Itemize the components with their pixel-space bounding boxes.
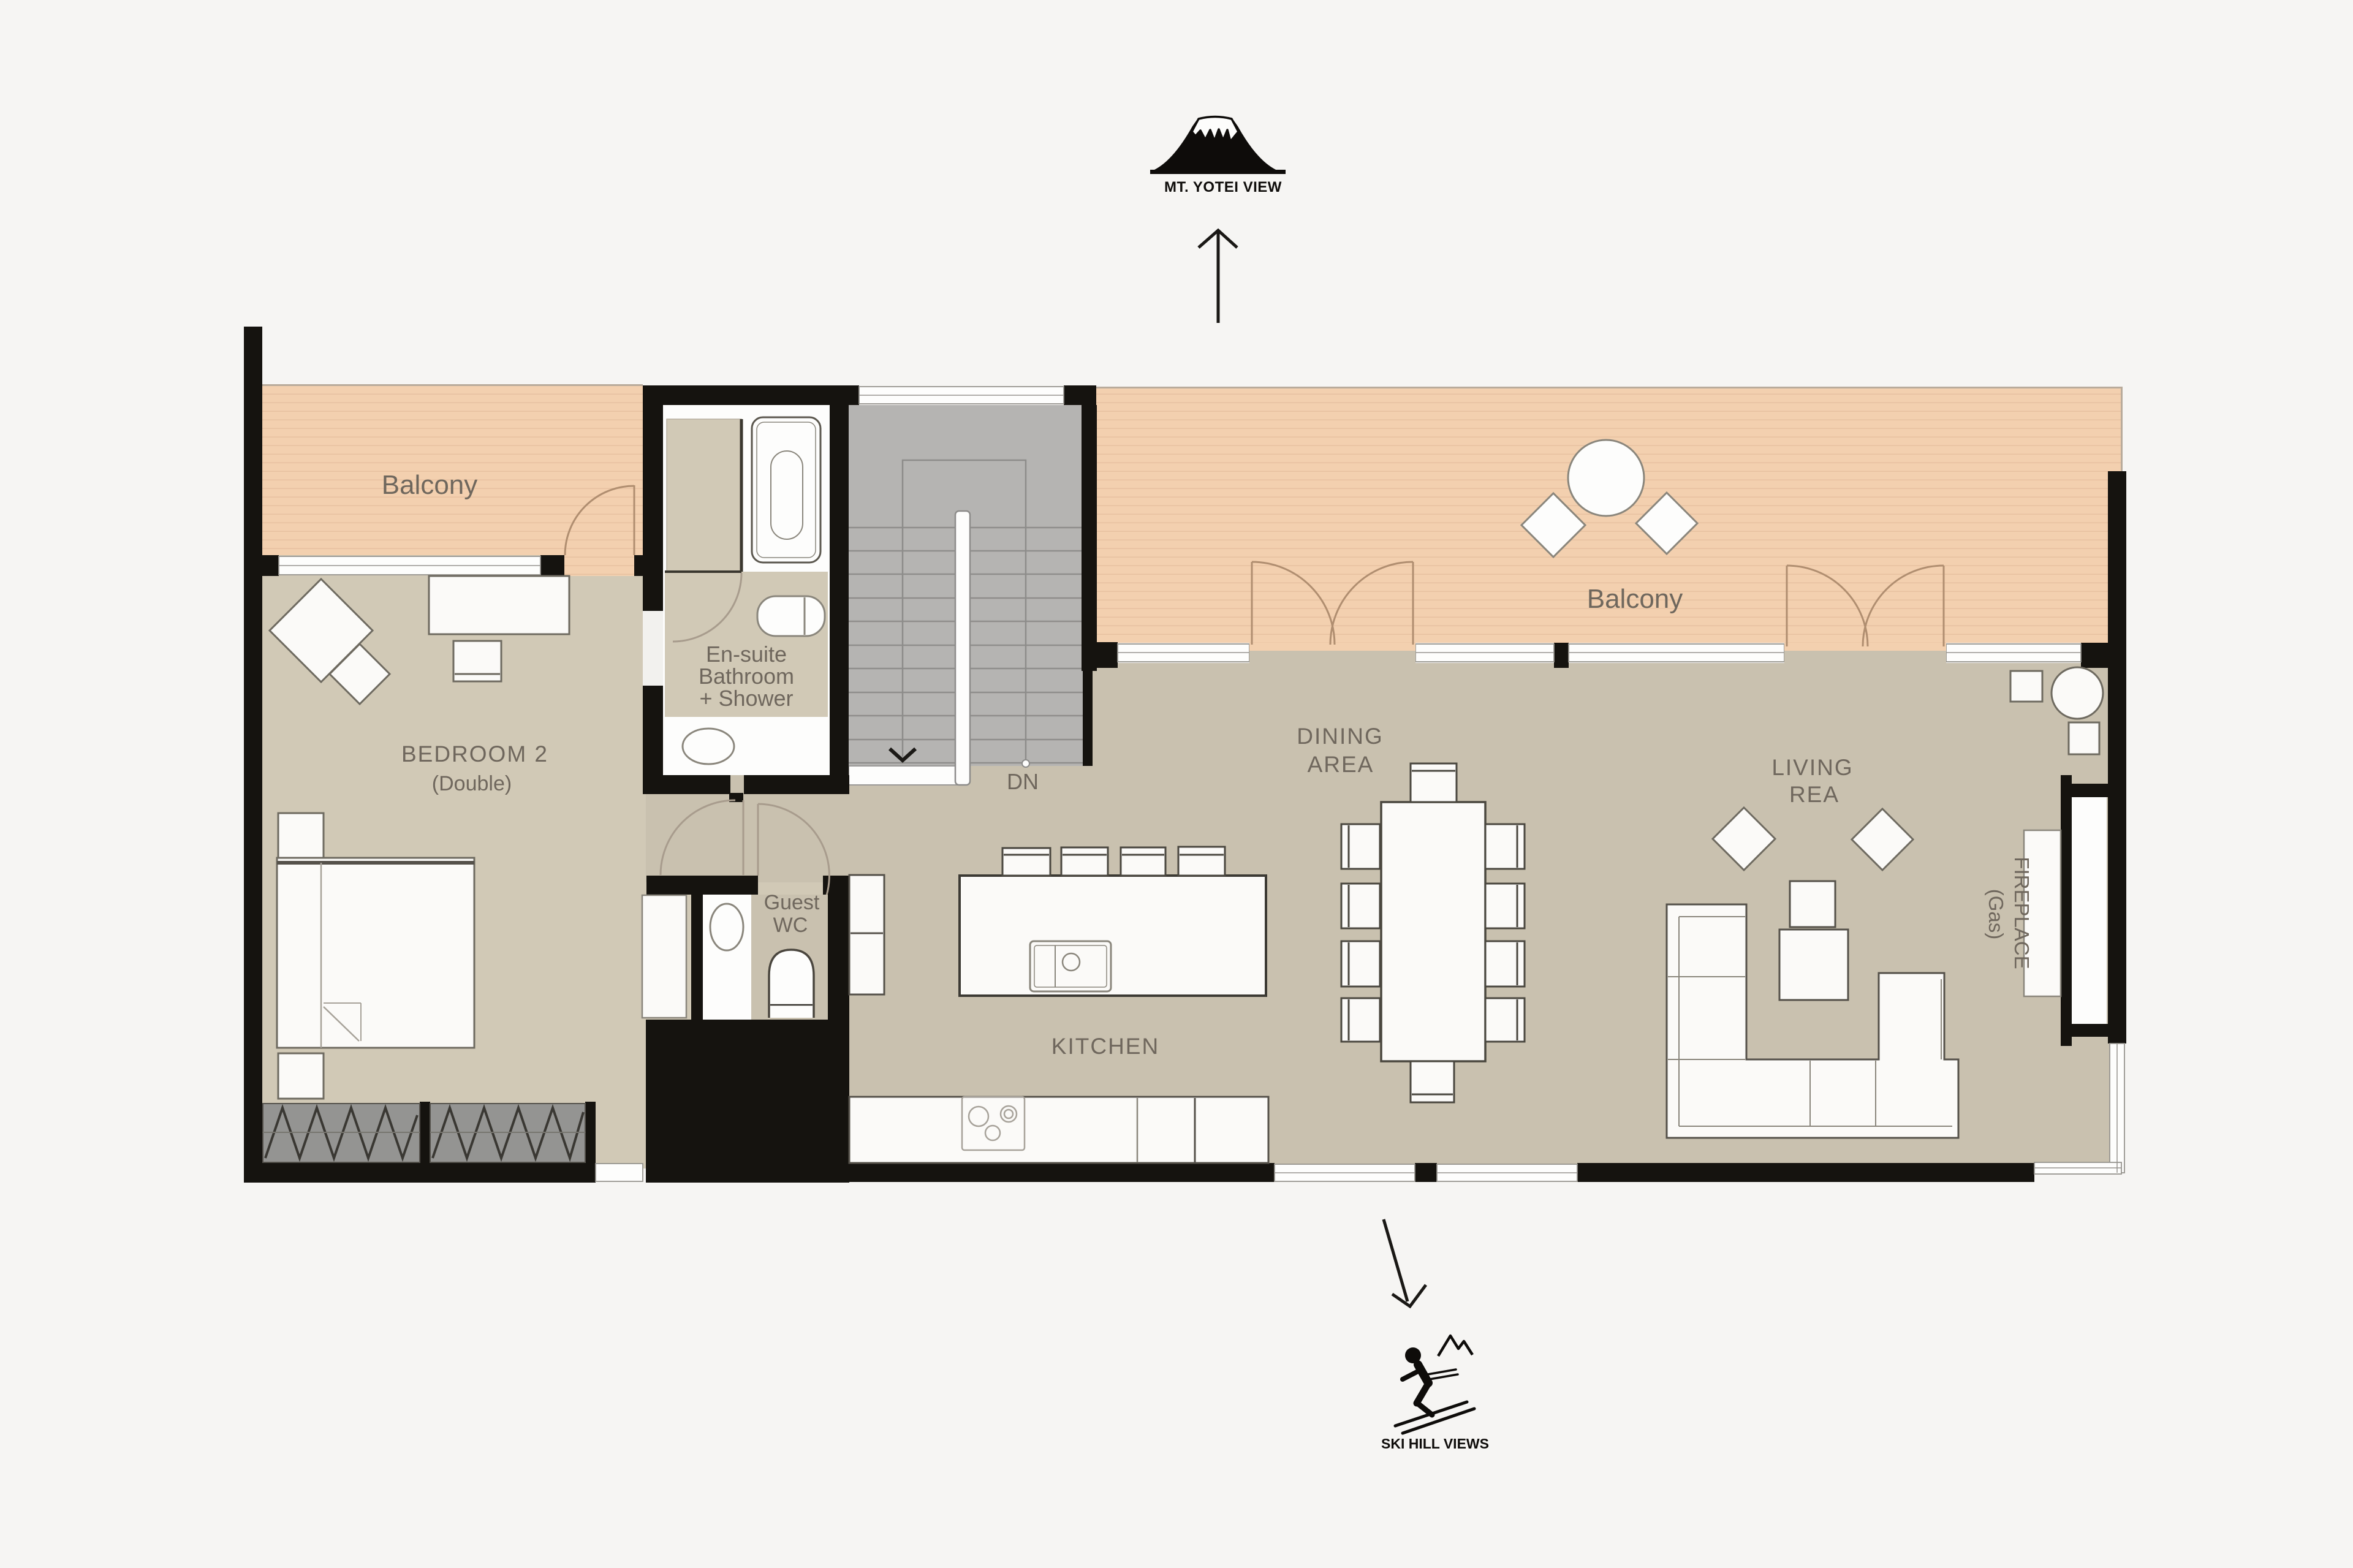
svg-text:LIVING: LIVING xyxy=(1771,755,1853,780)
svg-text:REA: REA xyxy=(1789,782,1840,807)
svg-text:Balcony: Balcony xyxy=(382,470,478,500)
svg-text:+ Shower: + Shower xyxy=(699,686,793,711)
svg-text:En-suite: En-suite xyxy=(706,642,787,667)
svg-text:Balcony: Balcony xyxy=(1587,584,1683,614)
svg-text:WC: WC xyxy=(773,914,808,937)
svg-text:Bathroom: Bathroom xyxy=(699,664,794,689)
svg-text:KITCHEN: KITCHEN xyxy=(1051,1034,1159,1059)
svg-text:SKI HILL VIEWS: SKI HILL VIEWS xyxy=(1381,1436,1489,1452)
svg-text:Guest: Guest xyxy=(764,891,820,914)
svg-text:DN: DN xyxy=(1007,769,1039,794)
svg-text:DINING: DINING xyxy=(1297,724,1384,749)
svg-text:(Double): (Double) xyxy=(432,772,512,795)
svg-text:AREA: AREA xyxy=(1308,752,1374,777)
svg-text:MT. YOTEI VIEW: MT. YOTEI VIEW xyxy=(1164,179,1282,195)
svg-text:(Gas): (Gas) xyxy=(1985,889,2007,940)
svg-text:FIREPLACE: FIREPLACE xyxy=(2010,857,2033,969)
svg-text:BEDROOM 2: BEDROOM 2 xyxy=(401,741,548,767)
